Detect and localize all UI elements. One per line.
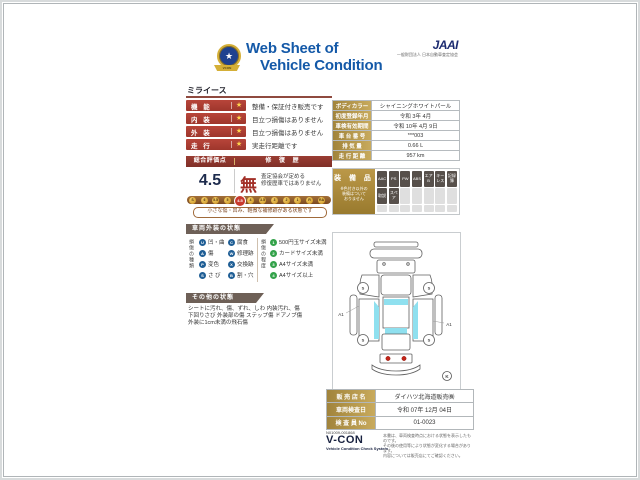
grade-scale-bar: S 6 5.5 5 4.5 4 3.5 3 2 1 R RA [187, 196, 331, 204]
wheel-code: S [428, 286, 431, 291]
rating-label: 走 行 [186, 140, 231, 150]
degree-code-icon: 1 [270, 239, 277, 246]
rating-desc: 目立つ損傷はありません [252, 114, 323, 124]
rating-row-interior: 内 装 ★ 目立つ損傷はありません [186, 113, 332, 124]
badge-ribbon: VCON [214, 65, 240, 71]
badge-star-icon: ★ [217, 44, 241, 68]
disclaimer: 本書は、車両検査時点における状態を表示したものです。 その後の使用等により状態が… [383, 433, 473, 458]
dealer-label: 検 査 員 No [327, 417, 375, 429]
repair-history-value: 無 [240, 171, 257, 196]
damage-code-icon: B [228, 272, 235, 279]
rating-row-mileage: 走 行 ★ 実走行距離です [186, 139, 332, 150]
equipment-badge: PS [389, 171, 399, 187]
other-condition-line3: 外装に1cm未満の飛石傷 [188, 320, 248, 327]
right-window-highlight [413, 301, 418, 339]
overall-score: 4.5 [186, 167, 234, 195]
rating-row-exterior: 外 装 ★ 目立つ損傷はありません [186, 126, 332, 137]
equipment-badge: エアB [424, 171, 434, 187]
info-value: 令和 3年 4月 [372, 111, 459, 120]
legend-item: Sさ び [199, 271, 221, 279]
damage-code-icon: S [199, 272, 206, 279]
washer-nozzle [383, 263, 386, 266]
star-icon: ★ [232, 139, 246, 150]
wheel-code: S [362, 338, 365, 343]
legend-item: 3A4サイズ未満 [270, 260, 313, 268]
star-icon: ★ [232, 126, 246, 137]
exterior-banner: 車両外装の状態 [186, 224, 274, 234]
page-title-line1: Web Sheet of [246, 40, 338, 57]
equipment-badge-empty [435, 188, 445, 204]
table-row: 販 売 店 名ダイハツ北海道販売㈱ [327, 390, 473, 402]
legend-label: 腐食 [237, 238, 248, 246]
legend-label: 500円玉サイズ未満 [279, 238, 327, 246]
evaluation-header: 総合評価点 修 復 歴 [186, 156, 332, 167]
legend-label: A4サイズ未満 [279, 260, 313, 268]
equipment-badge-empty [377, 205, 387, 212]
info-value: 0.66 L [372, 141, 459, 150]
rear-lamp-marker [386, 356, 390, 360]
equipment-badge-empty [447, 188, 457, 204]
vcon-badge-icon: ★ VCON [214, 44, 240, 76]
legend-item: B割・穴 [228, 271, 254, 279]
equipment-badge-empty [412, 205, 422, 212]
left-sill [350, 295, 357, 335]
car-diagram-box: S S S S K A1 A1 [332, 232, 461, 390]
table-row: 車両検査日令和 07年 12月 04日 [327, 403, 473, 415]
page-title-line2: Vehicle Condition [260, 57, 382, 74]
dealer-value: 01-0023 [376, 417, 473, 429]
info-label: 走 行 距 離 [333, 151, 371, 160]
equipment-box: 装 備 品 ※色付き以外の 装備はついて おりません AAC PS PW ABS… [332, 168, 460, 215]
rating-label: 外 装 [186, 127, 231, 137]
star-icon: ★ [232, 100, 246, 111]
damage-code-icon: P [199, 261, 206, 268]
grade-dot: 3.5 [259, 197, 266, 204]
disclaimer-line: 本書は、車両検査時点における状態を表示したものです。 [383, 433, 473, 443]
rating-label: 内 装 [186, 114, 231, 124]
grade-caption: 小さな傷・凹み、軽微な補修跡がある状態です [193, 207, 327, 218]
dealer-value: 令和 07年 12月 04日 [376, 403, 473, 415]
equipment-note-line: おりません [333, 196, 375, 201]
degree-code-icon: 4 [270, 272, 277, 279]
equipment-badge-empty [389, 205, 399, 212]
repair-note-1: 査定協会が定める [261, 174, 305, 181]
legend-label: 割・穴 [237, 271, 254, 279]
grade-dot: 3 [271, 197, 278, 204]
degree-code-icon: 3 [270, 261, 277, 268]
legend-label: 修理跡 [237, 249, 254, 257]
repair-note-2: 修復歴車ではありません [261, 181, 321, 188]
other-condition-line1: シートに汚れ、傷、ずれ、しわ 内装汚れ、傷 [188, 306, 300, 313]
damage-code-icon: C [228, 239, 235, 246]
rating-label-box: 内 装 ★ [186, 113, 246, 124]
dealer-label: 車両検査日 [327, 403, 375, 415]
grade-dot: 1 [294, 197, 301, 204]
equipment-badge: PW [400, 171, 410, 187]
legend-item: U凹・曲 [199, 238, 225, 246]
info-label: 車 台 番 号 [333, 131, 371, 140]
vcon-logo: V-CON [326, 434, 363, 446]
rear-panel [380, 354, 412, 363]
info-label: 車検有効期間 [333, 121, 371, 130]
other-condition-line2: 下回りさび 外装部の傷 ステップ傷 ドアノブ傷 [188, 313, 302, 320]
damage-code-icon: A [199, 250, 206, 257]
wheel-code: S [428, 338, 431, 343]
vehicle-info-table: ボディカラーシャイニングホワイトパール 初度登録年月令和 3年 4月 車検有効期… [332, 100, 460, 161]
rating-label-box: 外 装 ★ [186, 126, 246, 137]
repair-header: 修 復 歴 [235, 156, 332, 167]
info-value: 令和 10年 4月 9日 [372, 121, 459, 130]
rating-desc: 実走行距離です [252, 140, 298, 150]
score-header: 総合評価点 [186, 156, 234, 167]
hood [377, 260, 415, 273]
info-label: ボディカラー [333, 101, 371, 110]
equipment-badge: 取説 [377, 188, 387, 204]
wheel-code: S [362, 286, 365, 291]
info-value: 957 km [372, 151, 459, 160]
damage-code-icon: X [228, 261, 235, 268]
windshield [381, 275, 411, 295]
equipment-note: ※色付き以外の 装備はついて おりません [333, 186, 375, 201]
rating-row-function: 機 能 ★ 整備・保証付き販売です [186, 100, 332, 111]
dealer-table: 販 売 店 名ダイハツ北海道販売㈱ 車両検査日令和 07年 12月 04日 検 … [326, 389, 474, 430]
legend-label: カードサイズ未満 [279, 249, 323, 257]
equipment-badge-empty [424, 205, 434, 212]
rating-label: 機 能 [186, 101, 231, 111]
legend-label: 傷 [208, 249, 214, 257]
vertical-divider [234, 169, 235, 193]
equipment-badge-empty [435, 205, 445, 212]
grade-dot: 4 [247, 197, 254, 204]
dealer-label: 販 売 店 名 [327, 390, 375, 402]
equipment-panel: 装 備 品 ※色付き以外の 装備はついて おりません [333, 169, 375, 214]
grade-dot: 6 [201, 197, 208, 204]
grade-dot: RA [318, 197, 325, 204]
damage-marker-left: A1 [338, 312, 344, 317]
jaai-subtext: 一般財団法人 日本自動車査定協会 [376, 52, 458, 58]
front-bumper [370, 249, 422, 258]
legend-label: A4サイズ以上 [279, 271, 313, 279]
other-condition-banner: その他の状態 [186, 293, 264, 303]
grade-dot-active: 4.5 [234, 195, 246, 207]
dealer-value: ダイハツ北海道販売㈱ [376, 390, 473, 402]
rating-label-box: 機 能 ★ [186, 100, 246, 111]
disclaimer-line: 内容については販売店にてご確認ください。 [383, 453, 473, 458]
info-value: ***003 [372, 131, 459, 140]
table-row: 初度登録年月令和 3年 4月 [333, 111, 459, 120]
equipment-badge: AAC [377, 171, 387, 187]
damage-marker-right: A1 [446, 322, 452, 327]
info-label: 排 気 量 [333, 141, 371, 150]
grade-dot: 2 [283, 197, 290, 204]
equipment-badge: スペア [389, 188, 399, 204]
info-label: 初度登録年月 [333, 111, 371, 120]
right-sill [435, 295, 442, 335]
legend-item: X交換跡 [228, 260, 254, 268]
degree-code-icon: 2 [270, 250, 277, 257]
equipment-badge-empty [447, 205, 457, 212]
legend-item: 4A4サイズ以上 [270, 271, 313, 279]
vcon-logo-subtext: Vehicle Condition Check System [326, 446, 388, 451]
rear-bumper [372, 365, 420, 375]
star-icon: ★ [232, 113, 246, 124]
divider-rule [186, 96, 332, 98]
rear-lamp-marker [402, 356, 406, 360]
legend-label: さ び [208, 271, 221, 279]
legend-divider [257, 238, 258, 282]
left-window-highlight [374, 301, 379, 339]
legend-item: A傷 [199, 249, 214, 257]
legend-label: 変色 [208, 260, 219, 268]
legend-item: W修理跡 [228, 249, 254, 257]
rear-glass-highlight [385, 328, 407, 334]
legend-item: C腐食 [228, 238, 248, 246]
car-expanded-view: S S S S K A1 A1 [333, 233, 460, 389]
table-row: 走 行 距 離957 km [333, 151, 459, 160]
legend-label: 凹・曲 [208, 238, 225, 246]
rating-label-box: 走 行 ★ [186, 139, 246, 150]
legend-item: 2カードサイズ未満 [270, 249, 323, 257]
grade-dot: 5 [224, 197, 231, 204]
table-row: ボディカラーシャイニングホワイトパール [333, 101, 459, 110]
equipment-badge-empty [424, 188, 434, 204]
damage-degree-label: 損傷の程度 [260, 239, 267, 287]
legend-item: 1500円玉サイズ未満 [270, 238, 327, 246]
rating-desc: 整備・保証付き販売です [252, 101, 324, 111]
equipment-grid: AAC PS PW ABS エアB キーレス 記録簿 取説 スペア [375, 169, 459, 214]
jaai-logo: JAAI [396, 38, 458, 52]
table-row: 検 査 員 No01-0023 [327, 417, 473, 429]
legend-item: P変色 [199, 260, 219, 268]
equipment-badge: 記録簿 [447, 171, 457, 187]
equipment-badge: キーレス [435, 171, 445, 187]
equipment-title: 装 備 品 [333, 173, 375, 183]
grade-dot: R [306, 197, 313, 204]
equipment-badge-empty [412, 188, 422, 204]
damage-code-icon: U [199, 239, 206, 246]
rating-desc: 目立つ損傷はありません [252, 127, 323, 137]
table-row: 排 気 量0.66 L [333, 141, 459, 150]
equipment-badge: ABS [412, 171, 422, 187]
front-grille [374, 242, 418, 247]
evaluation-body: 4.5 無 査定協会が定める 修復歴車ではありません [186, 167, 332, 195]
damage-code-icon: W [228, 250, 235, 257]
table-row: 車検有効期間令和 10年 4月 9日 [333, 121, 459, 130]
info-value: シャイニングホワイトパール [372, 101, 459, 110]
damage-type-label: 損傷の種類 [188, 239, 195, 287]
equipment-badge-empty [400, 188, 410, 204]
legend-label: 交換跡 [237, 260, 254, 268]
table-row: 車 台 番 号***003 [333, 131, 459, 140]
exterior-legend: 損傷の種類 U凹・曲 A傷 P変色 Sさ び C腐食 W修理跡 X交換跡 B割・… [186, 237, 332, 290]
washer-nozzle [407, 263, 410, 266]
grade-dot: 5.5 [212, 197, 219, 204]
equipment-badge-empty [400, 205, 410, 212]
vehicle-name: ミライース [187, 85, 227, 96]
rear-gate [382, 334, 410, 350]
front-glass-highlight [384, 299, 408, 305]
grade-dot: S [189, 197, 196, 204]
disclaimer-line: その後の使用等により状態が変化する場合があります。 [383, 443, 473, 453]
